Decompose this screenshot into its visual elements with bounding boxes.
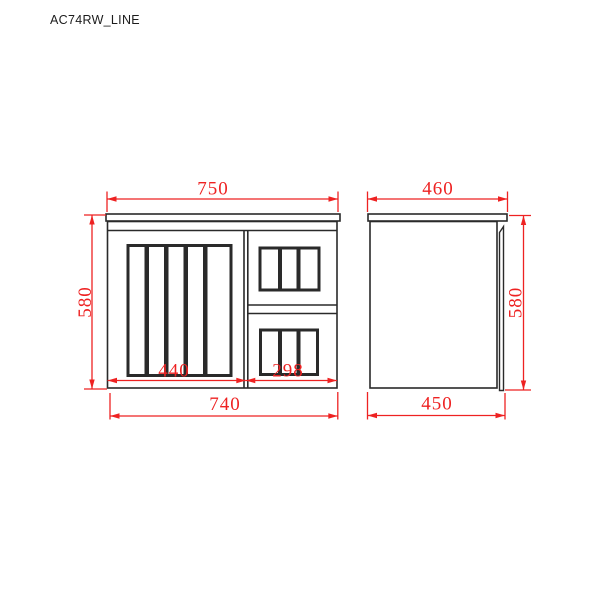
dim-front-top-width: 750 — [107, 179, 338, 213]
door-panel — [128, 246, 231, 376]
dim-label-750: 750 — [197, 179, 229, 200]
side-cabinet-body — [370, 222, 497, 389]
dim-label-740: 740 — [209, 394, 241, 415]
front-countertop — [106, 214, 340, 221]
door-slat-bar — [145, 247, 150, 374]
top-drawer-panel — [260, 248, 319, 290]
drawing-sheet: 750 460 580 580 440 — [0, 0, 600, 600]
dim-label-580-side: 580 — [506, 287, 527, 319]
dim-front-bottom-width: 740 — [110, 392, 338, 420]
front-view — [106, 214, 340, 388]
top-drawer — [260, 248, 319, 290]
door-slat-bar — [203, 247, 208, 374]
side-view — [368, 214, 507, 391]
door-slat-bar — [184, 247, 189, 374]
cad-drawing: 750 460 580 580 440 — [0, 0, 600, 600]
dim-label-298: 298 — [272, 361, 304, 382]
dim-side-height: 580 — [505, 216, 531, 391]
dim-label-440: 440 — [158, 361, 190, 382]
dim-side-bottom-depth: 450 — [368, 392, 506, 420]
door-panel-frame — [128, 246, 231, 376]
top-drawer-slat-bar — [297, 250, 301, 289]
dim-label-450: 450 — [421, 394, 453, 415]
top-drawer-slat-bar — [278, 250, 282, 289]
side-countertop — [368, 214, 507, 221]
dim-label-580-front: 580 — [75, 286, 96, 318]
side-door-front-edge — [500, 227, 504, 391]
dim-label-460: 460 — [422, 179, 454, 200]
door-slat-bar — [164, 247, 169, 374]
drawing-title: AC74RW_LINE — [50, 13, 140, 27]
dim-side-top-depth: 460 — [368, 179, 508, 213]
dim-front-height: 580 — [75, 215, 107, 389]
